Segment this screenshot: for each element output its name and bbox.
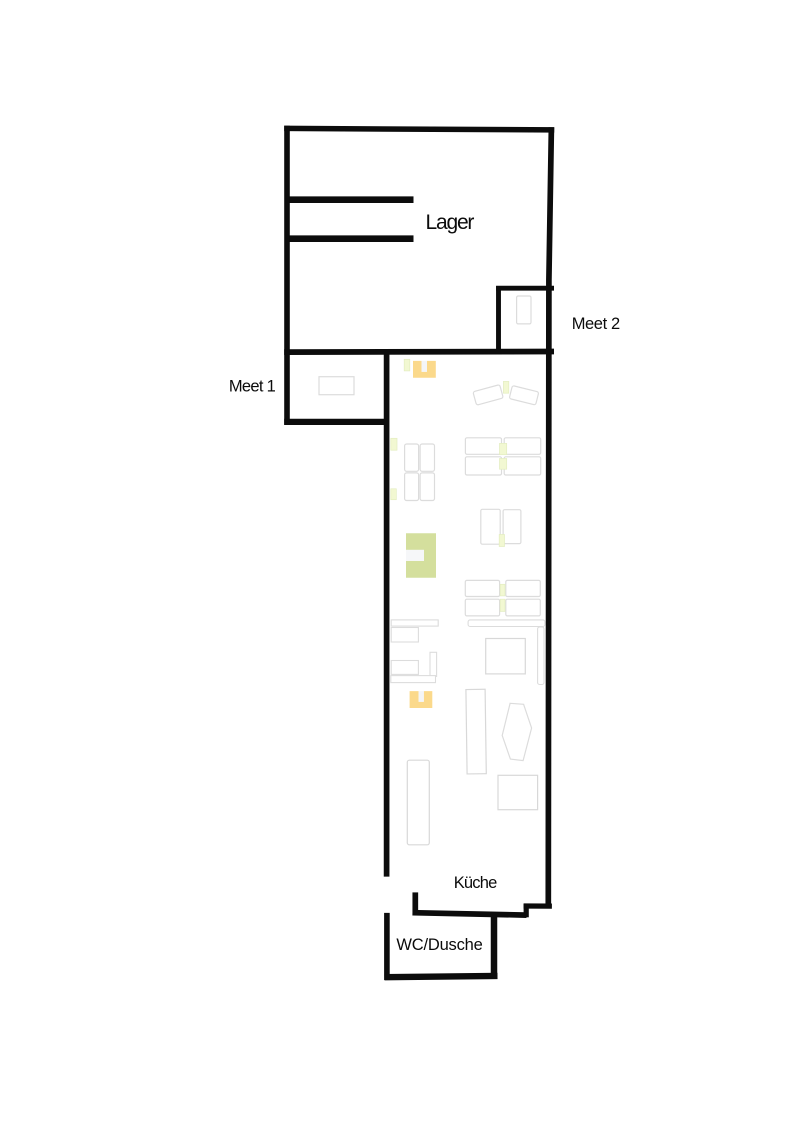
svg-text:WC/Dusche: WC/Dusche [396,936,482,954]
svg-text:Lager: Lager [426,211,475,234]
svg-text:Meet 1: Meet 1 [229,378,276,396]
svg-text:Meet 2: Meet 2 [572,315,620,333]
svg-text:Küche: Küche [454,874,497,892]
